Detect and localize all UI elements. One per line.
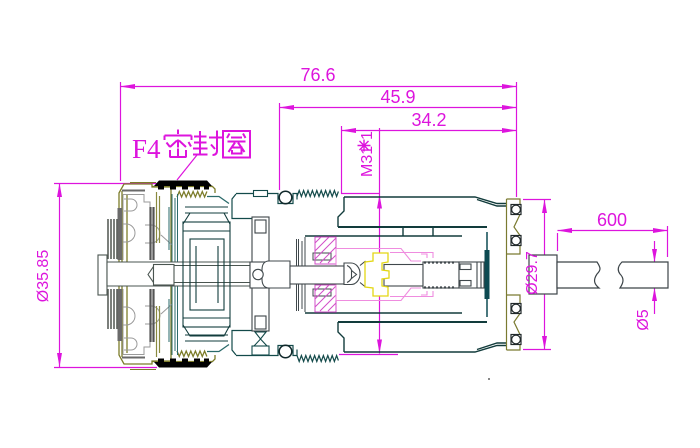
svg-text:600: 600 [597,210,627,230]
svg-text:1: 1 [359,131,376,140]
svg-text:Ø5: Ø5 [635,309,652,330]
svg-text:F4: F4 [132,134,161,164]
svg-text:Ø29.7: Ø29.7 [524,251,541,295]
svg-text:34.2: 34.2 [411,110,446,130]
svg-text:Ø35.85: Ø35.85 [35,250,52,303]
svg-text:M31: M31 [359,146,376,177]
svg-text:76.6: 76.6 [300,65,335,85]
svg-text:45.9: 45.9 [380,87,415,107]
